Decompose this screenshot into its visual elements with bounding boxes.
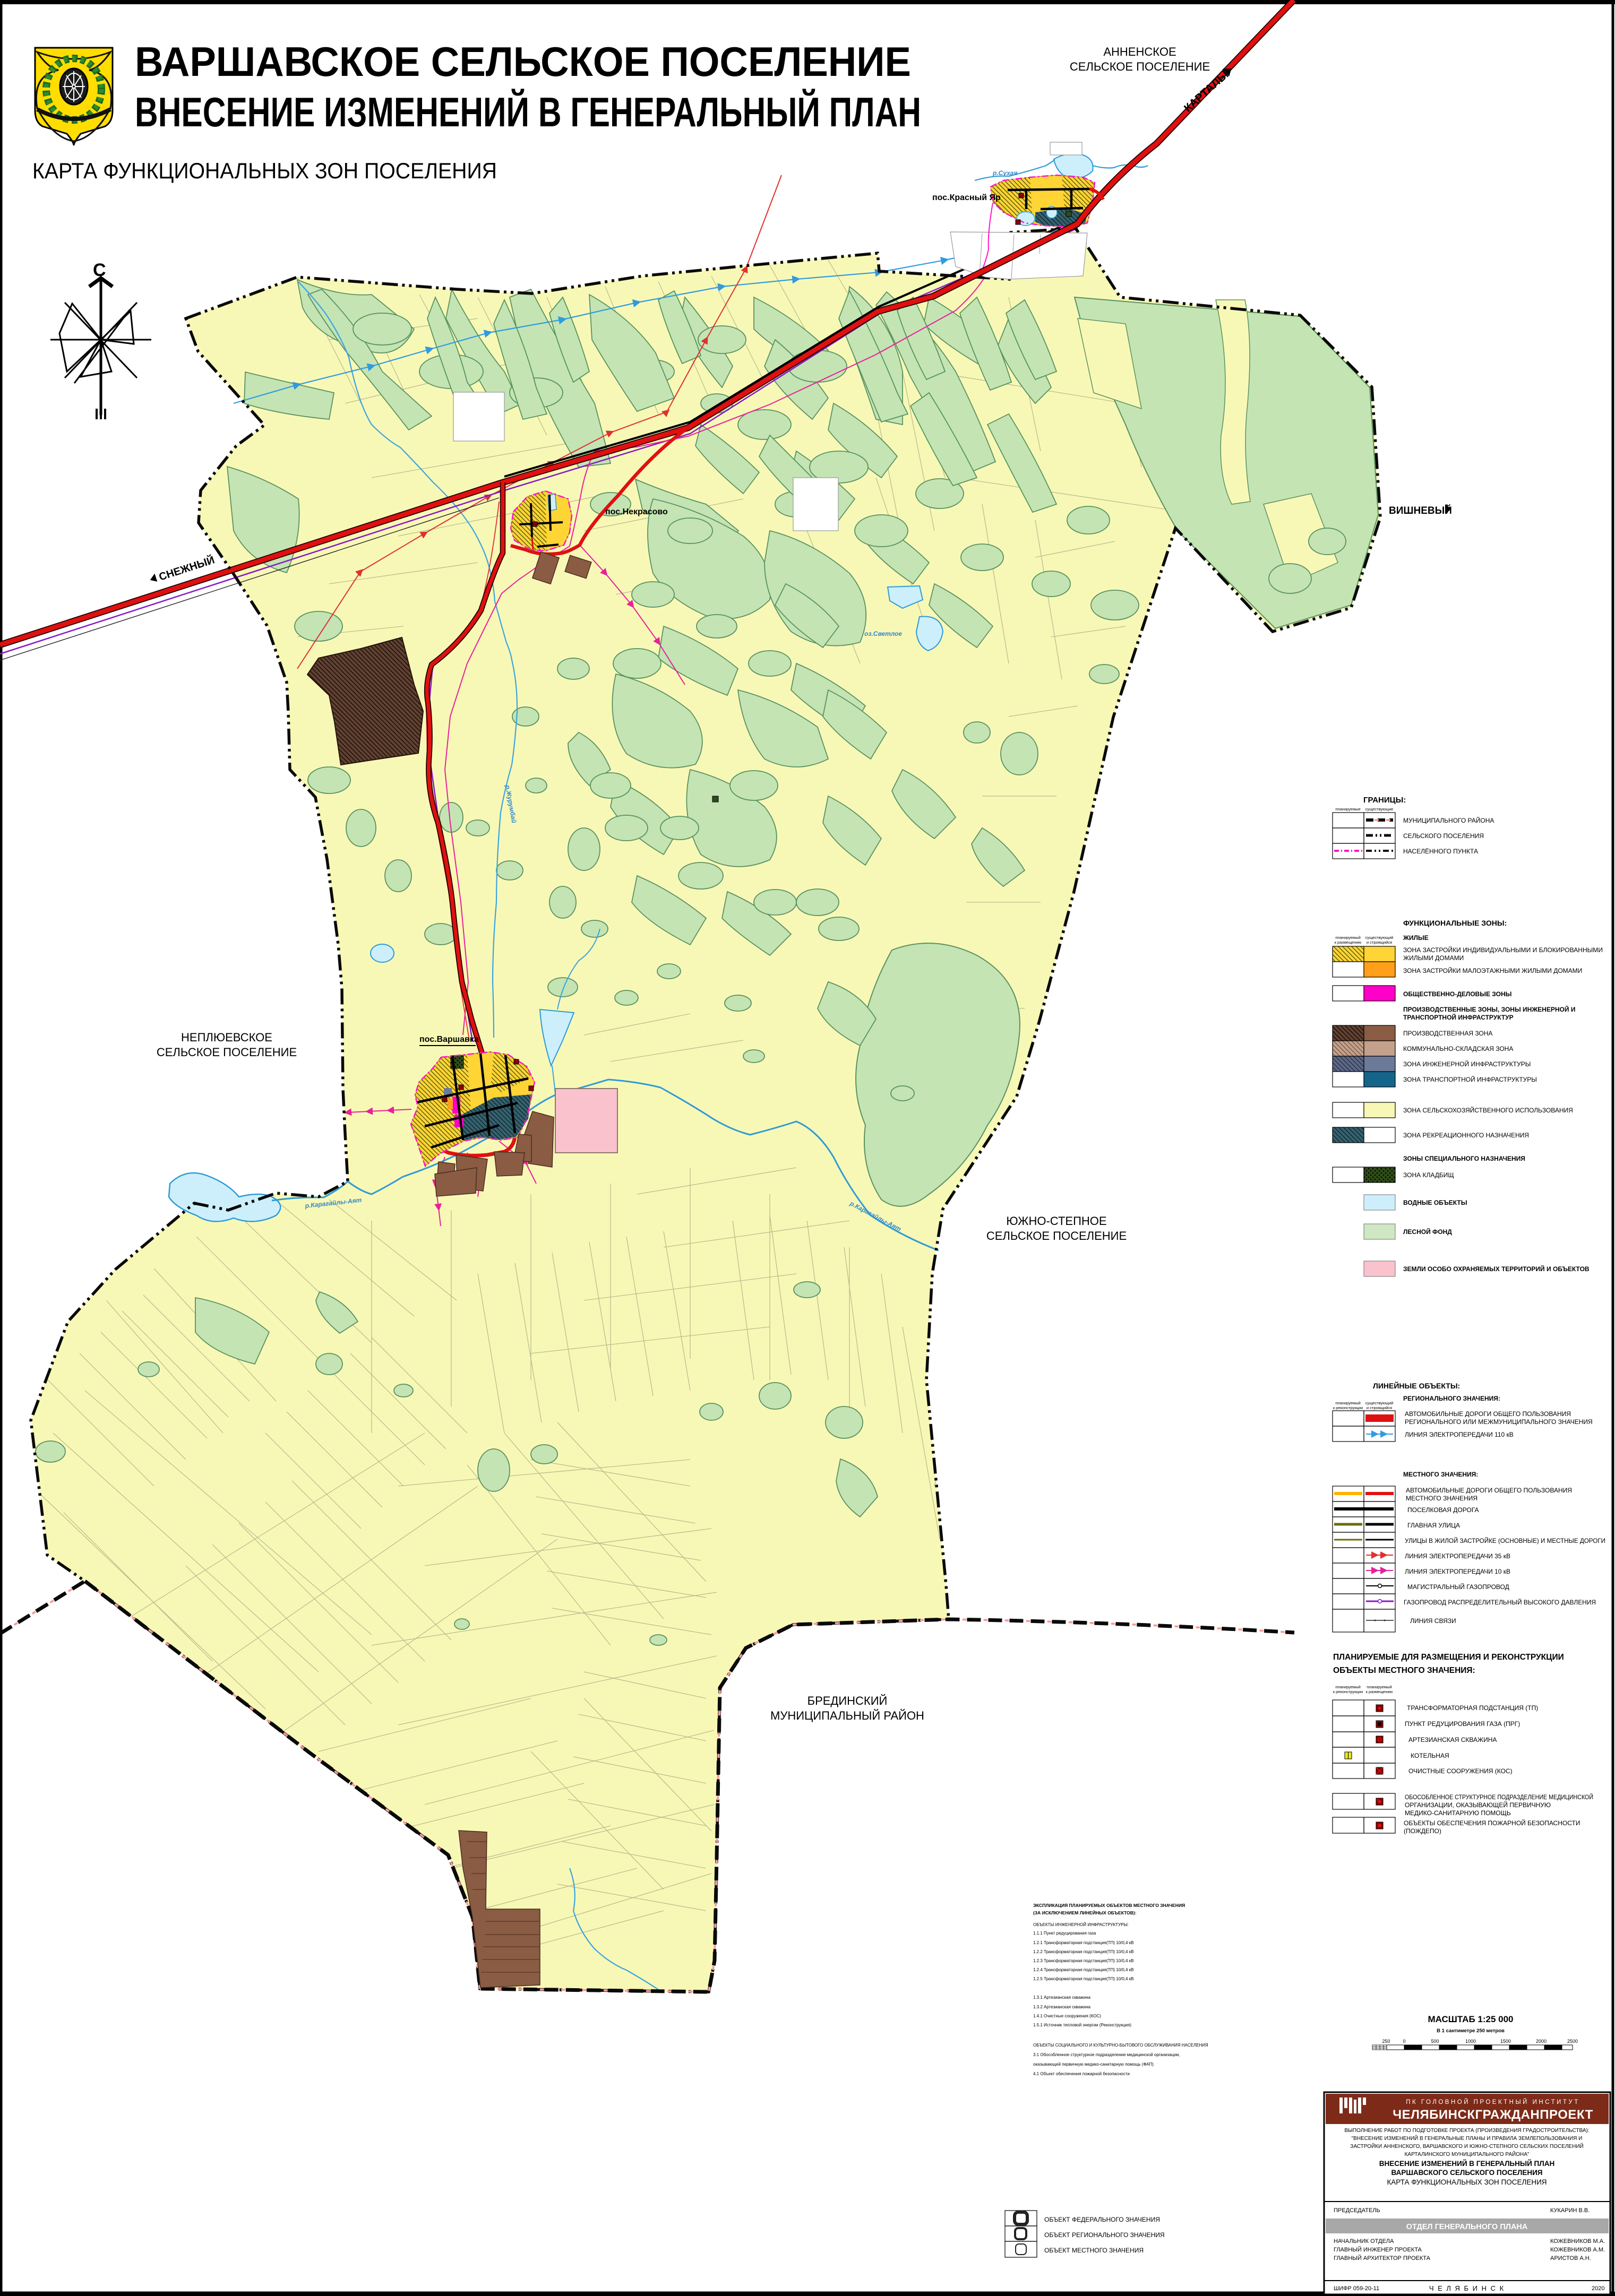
svg-text:МУНИЦИПАЛЬНЫЙ РАЙОН: МУНИЦИПАЛЬНЫЙ РАЙОН	[770, 1709, 924, 1722]
svg-text:С: С	[93, 260, 106, 280]
svg-text:РЕГИОНАЛЬНОГО ИЛИ МЕЖМУНИЦИПАЛ: РЕГИОНАЛЬНОГО ИЛИ МЕЖМУНИЦИПАЛЬНОГО ЗНАЧ…	[1405, 1418, 1593, 1426]
svg-text:к реконструкции: к реконструкции	[1333, 1405, 1363, 1410]
svg-text:ЗОНЫ СПЕЦИАЛЬНОГО НАЗНАЧЕНИЯ: ЗОНЫ СПЕЦИАЛЬНОГО НАЗНАЧЕНИЯ	[1403, 1155, 1525, 1162]
svg-text:ПРОИЗВОДСТВЕННАЯ ЗОНА: ПРОИЗВОДСТВЕННАЯ ЗОНА	[1403, 1030, 1492, 1037]
svg-text:ОТДЕЛ ГЕНЕРАЛЬНОГО ПЛАНА: ОТДЕЛ ГЕНЕРАЛЬНОГО ПЛАНА	[1406, 2223, 1528, 2231]
svg-text:АННЕНСКОЕ: АННЕНСКОЕ	[1103, 45, 1176, 58]
svg-text:ЮЖНО-СТЕПНОЕ: ЮЖНО-СТЕПНОЕ	[1006, 1214, 1106, 1228]
svg-text:к размещению: к размещению	[1366, 1689, 1393, 1694]
svg-text:ПРОИЗВОДСТВЕННЫЕ ЗОНЫ, ЗОНЫ ИН: ПРОИЗВОДСТВЕННЫЕ ЗОНЫ, ЗОНЫ ИНЖЕНЕРНОЙ И	[1403, 1005, 1575, 1013]
svg-text:НЕПЛЮЕВСКОЕ: НЕПЛЮЕВСКОЕ	[181, 1031, 272, 1044]
svg-text:к реконструкции: к реконструкции	[1333, 1689, 1363, 1694]
svg-text:СЕЛЬСКОЕ ПОСЕЛЕНИЕ: СЕЛЬСКОЕ ПОСЕЛЕНИЕ	[986, 1229, 1127, 1242]
svg-text:ТРАНСФОРМАТОРНАЯ ПОДСТАНЦИЯ (Т: ТРАНСФОРМАТОРНАЯ ПОДСТАНЦИЯ (ТП)	[1407, 1704, 1538, 1712]
svg-text:КОЖЕВНИКОВ М.А.: КОЖЕВНИКОВ М.А.	[1550, 2238, 1605, 2245]
svg-text:ГРАНИЦЫ:: ГРАНИЦЫ:	[1363, 796, 1406, 805]
svg-text:500: 500	[1431, 2039, 1439, 2044]
svg-text:ЗОНА ТРАНСПОРТНОЙ ИНФРАСТРУКТУ: ЗОНА ТРАНСПОРТНОЙ ИНФРАСТРУКТУРЫ	[1403, 1075, 1537, 1083]
svg-text:ВАРШАВСКОГО СЕЛЬСКОГО ПОСЕЛЕНИ: ВАРШАВСКОГО СЕЛЬСКОГО ПОСЕЛЕНИЯ	[1391, 2169, 1543, 2177]
svg-text:ЗОНА ЗАСТРОЙКИ ИНДИВИДУАЛЬНЫМИ: ЗОНА ЗАСТРОЙКИ ИНДИВИДУАЛЬНЫМИ И БЛОКИРО…	[1403, 946, 1603, 954]
svg-text:АРИСТОВ А.Н.: АРИСТОВ А.Н.	[1550, 2255, 1591, 2262]
svg-text:(ЗА ИСКЛЮЧЕНИЕМ ЛИНЕЙНЫХ ОБЪЕК: (ЗА ИСКЛЮЧЕНИЕМ ЛИНЕЙНЫХ ОБЪЕКТОВ):	[1033, 1910, 1137, 1915]
svg-text:ЗОНА РЕКРЕАЦИОННОГО НАЗНАЧЕНИЯ: ЗОНА РЕКРЕАЦИОННОГО НАЗНАЧЕНИЯ	[1403, 1132, 1529, 1139]
svg-text:1.2.1 Трансформаторная подстан: 1.2.1 Трансформаторная подстанция(ТП) 10…	[1033, 1940, 1134, 1945]
svg-text:СЕЛЬСКОЕ ПОСЕЛЕНИЕ: СЕЛЬСКОЕ ПОСЕЛЕНИЕ	[157, 1046, 297, 1059]
svg-text:ЖИЛЫМИ ДОМАМИ: ЖИЛЫМИ ДОМАМИ	[1403, 954, 1464, 962]
svg-text:ЛИНИЯ ЭЛЕКТРОПЕРЕДАЧИ 10 кВ: ЛИНИЯ ЭЛЕКТРОПЕРЕДАЧИ 10 кВ	[1405, 1568, 1510, 1575]
svg-text:ЗАСТРОЙКИ АННЕНСКОГО, ВАРШАВСК: ЗАСТРОЙКИ АННЕНСКОГО, ВАРШАВСКОГО И ЮЖНО…	[1350, 2143, 1583, 2150]
svg-text:ЛИНИЯ ЭЛЕКТРОПЕРЕДАЧИ 35 кВ: ЛИНИЯ ЭЛЕКТРОПЕРЕДАЧИ 35 кВ	[1405, 1552, 1510, 1560]
svg-text:2000: 2000	[1536, 2039, 1547, 2044]
svg-text:1.2.4 Трансформаторная подстан: 1.2.4 Трансформаторная подстанция(ТП) 10…	[1033, 1967, 1134, 1972]
svg-text:существующий: существующий	[1365, 1401, 1394, 1405]
svg-text:НАЧАЛЬНИК ОТДЕЛА: НАЧАЛЬНИК ОТДЕЛА	[1334, 2238, 1394, 2245]
svg-text:ОБЪЕКТ ФЕДЕРАЛЬНОГО ЗНАЧЕНИЯ: ОБЪЕКТ ФЕДЕРАЛЬНОГО ЗНАЧЕНИЯ	[1044, 2216, 1160, 2223]
svg-text:КОЖЕВНИКОВ А.М.: КОЖЕВНИКОВ А.М.	[1550, 2247, 1605, 2253]
svg-text:ЛЕСНОЙ ФОНД: ЛЕСНОЙ ФОНД	[1403, 1228, 1452, 1236]
svg-text:ОБЪЕКТЫ ИНЖЕНЕРНОЙ ИНФРАСТРУКТ: ОБЪЕКТЫ ИНЖЕНЕРНОЙ ИНФРАСТРУКТУРЫ:	[1033, 1922, 1129, 1927]
svg-text:"ВНЕСЕНИЕ ИЗМЕНЕНИЙ В ГЕНЕРАЛЬ: "ВНЕСЕНИЕ ИЗМЕНЕНИЙ В ГЕНЕРАЛЬНЫЕ ПЛАНЫ …	[1352, 2135, 1583, 2142]
svg-text:МЕСТНОГО ЗНАЧЕНИЯ: МЕСТНОГО ЗНАЧЕНИЯ	[1406, 1495, 1477, 1502]
svg-text:МЕСТНОГО ЗНАЧЕНИЯ:: МЕСТНОГО ЗНАЧЕНИЯ:	[1403, 1471, 1478, 1478]
svg-text:пос.Варшавка: пос.Варшавка	[419, 1035, 479, 1044]
svg-text:ТРАНСПОРТНОЙ ИНФРАСТРУКТУР: ТРАНСПОРТНОЙ ИНФРАСТРУКТУР	[1403, 1013, 1514, 1021]
svg-text:1.3.2 Артезианская скважина: 1.3.2 Артезианская скважина	[1033, 2005, 1091, 2009]
svg-text:ФУНКЦИОНАЛЬНЫЕ ЗОНЫ:: ФУНКЦИОНАЛЬНЫЕ ЗОНЫ:	[1403, 919, 1507, 927]
svg-text:ЗОНА ЗАСТРОЙКИ МАЛОЭТАЖНЫМИ ЖИ: ЗОНА ЗАСТРОЙКИ МАЛОЭТАЖНЫМИ ЖИЛЫМИ ДОМАМ…	[1403, 966, 1582, 974]
svg-text:к размещению: к размещению	[1335, 940, 1362, 945]
svg-text:ГЛАВНЫЙ ИНЖЕНЕР ПРОЕКТА: ГЛАВНЫЙ ИНЖЕНЕР ПРОЕКТА	[1334, 2246, 1422, 2253]
svg-text:КАРТАЛИНСКОГО МУНИЦИПАЛЬНОГО Р: КАРТАЛИНСКОГО МУНИЦИПАЛЬНОГО РАЙОНА"	[1405, 2151, 1530, 2157]
svg-text:АВТОМОБИЛЬНЫЕ ДОРОГИ ОБЩЕГО ПО: АВТОМОБИЛЬНЫЕ ДОРОГИ ОБЩЕГО ПОЛЬЗОВАНИЯ	[1405, 1410, 1571, 1418]
svg-text:НАСЕЛЁННОГО ПУНКТА: НАСЕЛЁННОГО ПУНКТА	[1403, 848, 1478, 855]
svg-text:ПК ГОЛОВНОЙ ПРОЕКТНЫЙ ИНСТИТУТ: ПК ГОЛОВНОЙ ПРОЕКТНЫЙ ИНСТИТУТ	[1406, 2099, 1580, 2105]
svg-text:КАРТА ФУНКЦИОНАЛЬНЫХ ЗОН ПОСЕЛ: КАРТА ФУНКЦИОНАЛЬНЫХ ЗОН ПОСЕЛЕНИЯ	[32, 158, 497, 183]
svg-text:СЕЛЬСКОГО ПОСЕЛЕНИЯ: СЕЛЬСКОГО ПОСЕЛЕНИЯ	[1403, 832, 1484, 840]
svg-text:АВТОМОБИЛЬНЫЕ ДОРОГИ ОБЩЕГО ПО: АВТОМОБИЛЬНЫЕ ДОРОГИ ОБЩЕГО ПОЛЬЗОВАНИЯ	[1406, 1487, 1572, 1494]
svg-text:ЧЕЛЯБИНСКГРАЖДАНПРОЕКТ: ЧЕЛЯБИНСКГРАЖДАНПРОЕКТ	[1393, 2108, 1593, 2122]
svg-text:МАГИСТРАЛЬНЫЙ ГАЗОПРОВОД: МАГИСТРАЛЬНЫЙ ГАЗОПРОВОД	[1407, 1583, 1509, 1591]
svg-text:РЕГИОНАЛЬНОГО ЗНАЧЕНИЯ:: РЕГИОНАЛЬНОГО ЗНАЧЕНИЯ:	[1403, 1395, 1500, 1402]
svg-text:АРТЕЗИАНСКАЯ СКВАЖИНА: АРТЕЗИАНСКАЯ СКВАЖИНА	[1408, 1736, 1497, 1743]
svg-text:ГЛАВНАЯ УЛИЦА: ГЛАВНАЯ УЛИЦА	[1407, 1522, 1460, 1529]
svg-text:ВНЕСЕНИЕ ИЗМЕНЕНИЙ В ГЕНЕРАЛЬН: ВНЕСЕНИЕ ИЗМЕНЕНИЙ В ГЕНЕРАЛЬНЫЙ ПЛАН	[1379, 2160, 1554, 2168]
svg-text:СЕЛЬСКОЕ ПОСЕЛЕНИЕ: СЕЛЬСКОЕ ПОСЕЛЕНИЕ	[1070, 60, 1210, 73]
svg-text:ОБЪЕКТЫ ОБЕСПЕЧЕНИЯ ПОЖАРНОЙ Б: ОБЪЕКТЫ ОБЕСПЕЧЕНИЯ ПОЖАРНОЙ БЕЗОПАСНОСТ…	[1404, 1819, 1580, 1827]
svg-text:ЭКСПЛИКАЦИЯ ПЛАНИРУЕМЫХ ОБЪЕКТ: ЭКСПЛИКАЦИЯ ПЛАНИРУЕМЫХ ОБЪЕКТОВ МЕСТНОГ…	[1033, 1903, 1185, 1908]
svg-text:пос.Красный Яр: пос.Красный Яр	[932, 193, 1001, 202]
svg-text:планируемый: планируемый	[1335, 1401, 1361, 1405]
svg-text:пос.Некрасово: пос.Некрасово	[605, 507, 668, 516]
svg-text:УЛИЦЫ В ЖИЛОЙ ЗАСТРОЙКЕ (ОСНОВ: УЛИЦЫ В ЖИЛОЙ ЗАСТРОЙКЕ (ОСНОВНЫЕ) И МЕС…	[1405, 1537, 1605, 1544]
svg-text:ПОСЕЛКОВАЯ ДОРОГА: ПОСЕЛКОВАЯ ДОРОГА	[1407, 1506, 1479, 1514]
svg-text:ОБОСОБЛЕННОЕ СТРУКТУРНОЕ ПОДРА: ОБОСОБЛЕННОЕ СТРУКТУРНОЕ ПОДРАЗДЕЛЕНИЕ М…	[1405, 1793, 1593, 1801]
svg-text:ЗОНА КЛАДБИЩ: ЗОНА КЛАДБИЩ	[1403, 1171, 1454, 1179]
svg-text:ОРГАНИЗАЦИИ, ОКАЗЫВАЮЩЕЙ ПЕРВИ: ОРГАНИЗАЦИИ, ОКАЗЫВАЮЩЕЙ ПЕРВИЧНУЮ	[1405, 1801, 1551, 1809]
svg-text:и строящийся: и строящийся	[1367, 940, 1392, 945]
svg-text:оз.Светлое: оз.Светлое	[864, 630, 902, 637]
svg-text:ОЧИСТНЫЕ СООРУЖЕНИЯ (КОС): ОЧИСТНЫЕ СООРУЖЕНИЯ (КОС)	[1408, 1767, 1513, 1775]
svg-text:планируемый: планируемый	[1335, 1685, 1361, 1689]
svg-text:планируемые: планируемые	[1335, 807, 1361, 812]
svg-text:ВАРШАВСКОЕ СЕЛЬСКОЕ ПОСЕЛЕНИЕ: ВАРШАВСКОЕ СЕЛЬСКОЕ ПОСЕЛЕНИЕ	[135, 38, 911, 85]
svg-text:Ч Е Л Я Б И Н С К: Ч Е Л Я Б И Н С К	[1429, 2284, 1505, 2292]
svg-text:оказывающей первичную медико-с: оказывающей первичную медико-санитарную …	[1033, 2062, 1154, 2067]
svg-text:ЖИЛЫЕ: ЖИЛЫЕ	[1403, 934, 1429, 942]
svg-text:ВИШНЕВЫЙ: ВИШНЕВЫЙ	[1389, 505, 1452, 516]
svg-text:В 1 сантиметре 250 метров: В 1 сантиметре 250 метров	[1437, 2028, 1505, 2034]
svg-text:4.1 Объект обеспечения пожарно: 4.1 Объект обеспечения пожарной безопасн…	[1033, 2071, 1130, 2076]
svg-text:ПУНКТ РЕДУЦИРОВАНИЯ ГАЗА (ПРГ): ПУНКТ РЕДУЦИРОВАНИЯ ГАЗА (ПРГ)	[1405, 1720, 1520, 1728]
svg-text:(ПОЖДЕПО): (ПОЖДЕПО)	[1404, 1827, 1441, 1835]
svg-text:1.2.3 Трансформаторная подстан: 1.2.3 Трансформаторная подстанция(ТП) 10…	[1033, 1958, 1134, 1963]
svg-text:планируемый: планируемый	[1335, 935, 1361, 940]
svg-text:ОБЪЕКТ МЕСТНОГО ЗНАЧЕНИЯ: ОБЪЕКТ МЕСТНОГО ЗНАЧЕНИЯ	[1044, 2247, 1144, 2254]
svg-text:ЗОНА ИНЖЕНЕРНОЙ ИНФРАСТРУКТУРЫ: ЗОНА ИНЖЕНЕРНОЙ ИНФРАСТРУКТУРЫ	[1403, 1060, 1531, 1068]
svg-text:БРЕДИНСКИЙ: БРЕДИНСКИЙ	[807, 1694, 888, 1707]
svg-text:ГАЗОПРОВОД РАСПРЕДЕЛИТЕЛЬНЫЙ В: ГАЗОПРОВОД РАСПРЕДЕЛИТЕЛЬНЫЙ ВЫСОКОГО ДА…	[1404, 1598, 1596, 1606]
svg-text:МУНИЦИПАЛЬНОГО РАЙОНА: МУНИЦИПАЛЬНОГО РАЙОНА	[1403, 816, 1494, 824]
svg-text:ОБЪЕКТЫ СОЦИАЛЬНОГО И КУЛЬТУРН: ОБЪЕКТЫ СОЦИАЛЬНОГО И КУЛЬТУРНО-БЫТОВОГО…	[1033, 2043, 1208, 2048]
svg-text:ЛИНИЯ ЭЛЕКТРОПЕРЕДАЧИ 110 кВ: ЛИНИЯ ЭЛЕКТРОПЕРЕДАЧИ 110 кВ	[1405, 1431, 1514, 1438]
svg-text:КОММУНАЛЬНО-СКЛАДСКАЯ ЗОНА: КОММУНАЛЬНО-СКЛАДСКАЯ ЗОНА	[1403, 1045, 1513, 1052]
svg-text:МЕДИКО-САНИТАРНУЮ ПОМОЩЬ: МЕДИКО-САНИТАРНУЮ ПОМОЩЬ	[1405, 1809, 1511, 1817]
svg-text:ВНЕСЕНИЕ ИЗМЕНЕНИЙ В ГЕНЕРАЛЬН: ВНЕСЕНИЕ ИЗМЕНЕНИЙ В ГЕНЕРАЛЬНЫЙ ПЛАН	[135, 89, 921, 135]
svg-text:КУКАРИН В.В.: КУКАРИН В.В.	[1550, 2207, 1590, 2214]
svg-text:ОБЩЕСТВЕННО-ДЕЛОВЫЕ ЗОНЫ: ОБЩЕСТВЕННО-ДЕЛОВЫЕ ЗОНЫ	[1403, 990, 1511, 998]
svg-text:250: 250	[1382, 2039, 1390, 2044]
svg-text:1.3.1 Артезианская скважина: 1.3.1 Артезианская скважина	[1033, 1995, 1091, 2000]
svg-text:2500: 2500	[1567, 2039, 1578, 2044]
svg-text:1.5.1 Источник тепловой энерги: 1.5.1 Источник тепловой энергии (Реконст…	[1033, 2023, 1131, 2027]
svg-text:существующий: существующий	[1365, 935, 1394, 940]
svg-text:и строящийся: и строящийся	[1367, 1405, 1392, 1410]
svg-text:ЗОНА СЕЛЬСКОХОЗЯЙСТВЕННОГО ИСП: ЗОНА СЕЛЬСКОХОЗЯЙСТВЕННОГО ИСПОЛЬЗОВАНИЯ	[1403, 1106, 1573, 1114]
svg-text:1.2.2 Трансформаторная подстан: 1.2.2 Трансформаторная подстанция(ТП) 10…	[1033, 1949, 1134, 1954]
svg-text:существующие: существующие	[1365, 807, 1394, 812]
svg-text:КОТЕЛЬНАЯ: КОТЕЛЬНАЯ	[1411, 1752, 1449, 1759]
svg-text:ОБЪЕКТЫ МЕСТНОГО ЗНАЧЕНИЯ:: ОБЪЕКТЫ МЕСТНОГО ЗНАЧЕНИЯ:	[1333, 1666, 1475, 1675]
svg-text:ЛИНЕЙНЫЕ ОБЪЕКТЫ:: ЛИНЕЙНЫЕ ОБЪЕКТЫ:	[1373, 1381, 1460, 1390]
svg-text:ПЛАНИРУЕМЫЕ ДЛЯ РАЗМЕЩЕНИЯ И Р: ПЛАНИРУЕМЫЕ ДЛЯ РАЗМЕЩЕНИЯ И РЕКОНСТРУКЦ…	[1333, 1653, 1564, 1662]
svg-text:ЛИНИЯ СВЯЗИ: ЛИНИЯ СВЯЗИ	[1410, 1617, 1456, 1625]
svg-text:1000: 1000	[1465, 2039, 1476, 2044]
svg-text:1.4.1 Очистные сооружения (КОС: 1.4.1 Очистные сооружения (КОС)	[1033, 2014, 1101, 2018]
svg-text:ВЫПОЛНЕНИЕ РАБОТ ПО ПОДГОТОВКЕ: ВЫПОЛНЕНИЕ РАБОТ ПО ПОДГОТОВКЕ ПРОЕКТА (…	[1344, 2128, 1589, 2134]
svg-text:ПРЕДСЕДАТЕЛЬ: ПРЕДСЕДАТЕЛЬ	[1334, 2207, 1380, 2214]
svg-text:3.1 Обособленное структурное п: 3.1 Обособленное структурное подразделен…	[1033, 2052, 1180, 2057]
svg-text:0: 0	[1403, 2039, 1405, 2044]
svg-text:КАРТА ФУНКЦИОНАЛЬНЫХ ЗОН ПОСЕЛ: КАРТА ФУНКЦИОНАЛЬНЫХ ЗОН ПОСЕЛЕНИЯ	[1387, 2178, 1547, 2186]
svg-text:1.1.1 Пункт редуцирования газа: 1.1.1 Пункт редуцирования газа	[1033, 1931, 1096, 1936]
svg-text:ШИФР 059-20-11: ШИФР 059-20-11	[1334, 2285, 1379, 2292]
svg-text:ГЛАВНЫЙ АРХИТЕКТОР ПРОЕКТА: ГЛАВНЫЙ АРХИТЕКТОР ПРОЕКТА	[1334, 2255, 1431, 2262]
svg-text:планируемый: планируемый	[1367, 1685, 1392, 1689]
svg-text:р.Сухая: р.Сухая	[992, 169, 1017, 177]
svg-text:1500: 1500	[1500, 2039, 1511, 2044]
svg-text:МАСШТАБ 1:25 000: МАСШТАБ 1:25 000	[1428, 2014, 1513, 2024]
svg-text:2020: 2020	[1592, 2285, 1604, 2292]
svg-text:1.2.5 Трансформаторная подстан: 1.2.5 Трансформаторная подстанция(ТП) 10…	[1033, 1976, 1134, 1981]
svg-text:ОБЪЕКТ РЕГИОНАЛЬНОГО ЗНАЧЕНИЯ: ОБЪЕКТ РЕГИОНАЛЬНОГО ЗНАЧЕНИЯ	[1044, 2231, 1165, 2239]
svg-text:ВОДНЫЕ ОБЪЕКТЫ: ВОДНЫЕ ОБЪЕКТЫ	[1403, 1199, 1467, 1206]
svg-text:ЗЕМЛИ ОСОБО ОХРАНЯЕМЫХ ТЕРРИТО: ЗЕМЛИ ОСОБО ОХРАНЯЕМЫХ ТЕРРИТОРИЙ И ОБЪЕ…	[1403, 1265, 1590, 1273]
